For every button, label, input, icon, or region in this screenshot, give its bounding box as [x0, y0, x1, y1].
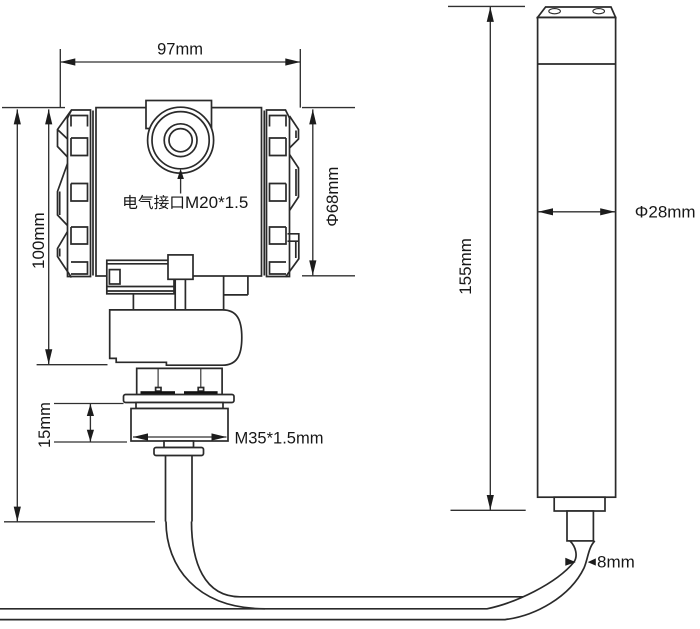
svg-text:97mm: 97mm: [157, 41, 203, 59]
svg-text:M35*1.5mm: M35*1.5mm: [235, 430, 324, 448]
svg-text:155mm: 155mm: [456, 238, 475, 295]
svg-text:Φ28mm: Φ28mm: [635, 203, 696, 222]
svg-text:100mm: 100mm: [29, 212, 48, 269]
svg-text:8mm: 8mm: [597, 553, 635, 572]
svg-text:Φ68mm: Φ68mm: [323, 167, 342, 227]
svg-text:M20*1.5: M20*1.5: [185, 193, 248, 212]
svg-text:15mm: 15mm: [36, 402, 54, 448]
